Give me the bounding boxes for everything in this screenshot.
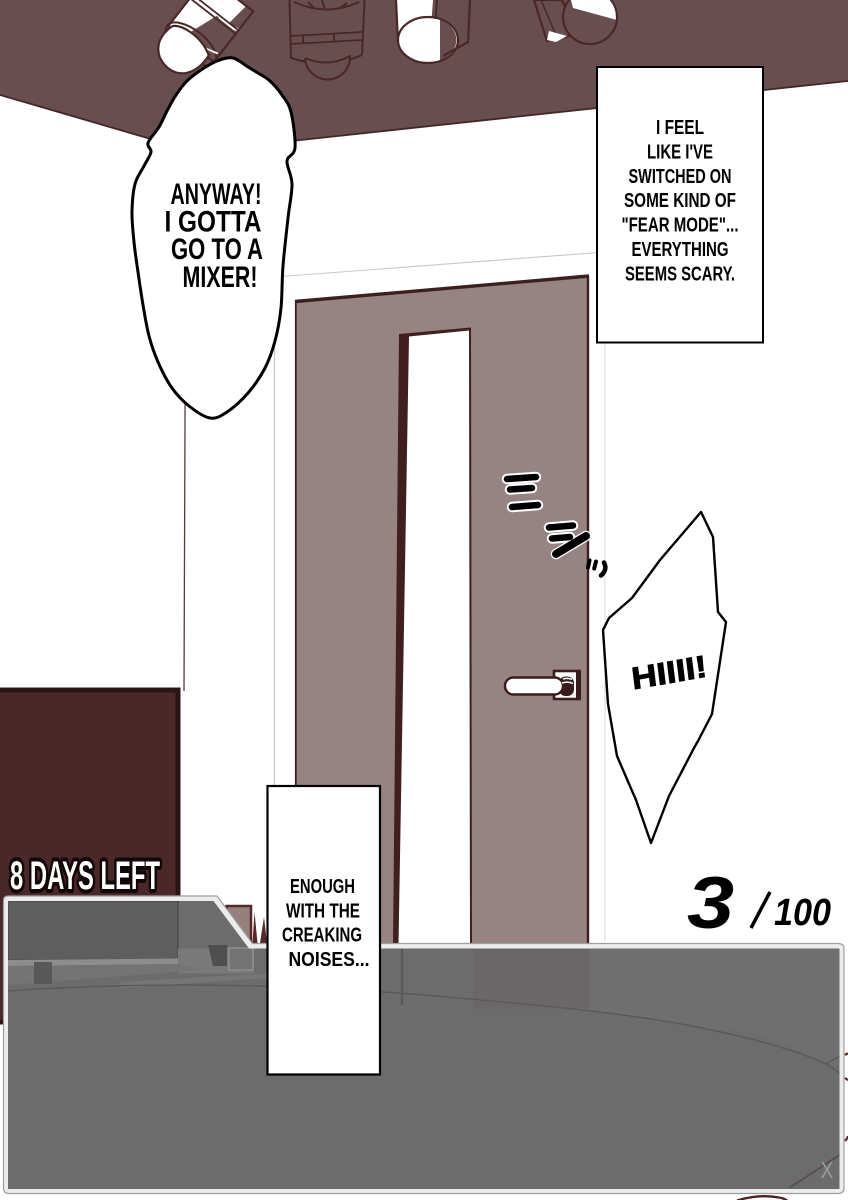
- svg-text:SOME KIND OF: SOME KIND OF: [624, 189, 736, 212]
- svg-text:CREAKING: CREAKING: [282, 924, 362, 947]
- svg-text:ENOUGH: ENOUGH: [290, 875, 355, 898]
- svg-text:I FEEL: I FEEL: [656, 116, 704, 139]
- svg-text:100: 100: [774, 892, 831, 934]
- svg-text:3: 3: [687, 862, 734, 944]
- svg-text:"FEAR MODE"...: "FEAR MODE"...: [622, 214, 739, 237]
- svg-text:8 DAYS LEFT: 8 DAYS LEFT: [10, 854, 160, 898]
- svg-text:LIKE I'VE: LIKE I'VE: [647, 140, 713, 163]
- svg-text:WITH THE: WITH THE: [286, 900, 360, 923]
- svg-text:X: X: [821, 1157, 834, 1183]
- svg-text:MIXER!: MIXER!: [183, 261, 258, 294]
- svg-text:SWITCHED ON: SWITCHED ON: [629, 165, 732, 188]
- svg-text:NOISES...: NOISES...: [289, 948, 370, 971]
- svg-text:EVERYTHING: EVERYTHING: [632, 238, 729, 261]
- svg-text:SEEMS SCARY.: SEEMS SCARY.: [625, 262, 735, 285]
